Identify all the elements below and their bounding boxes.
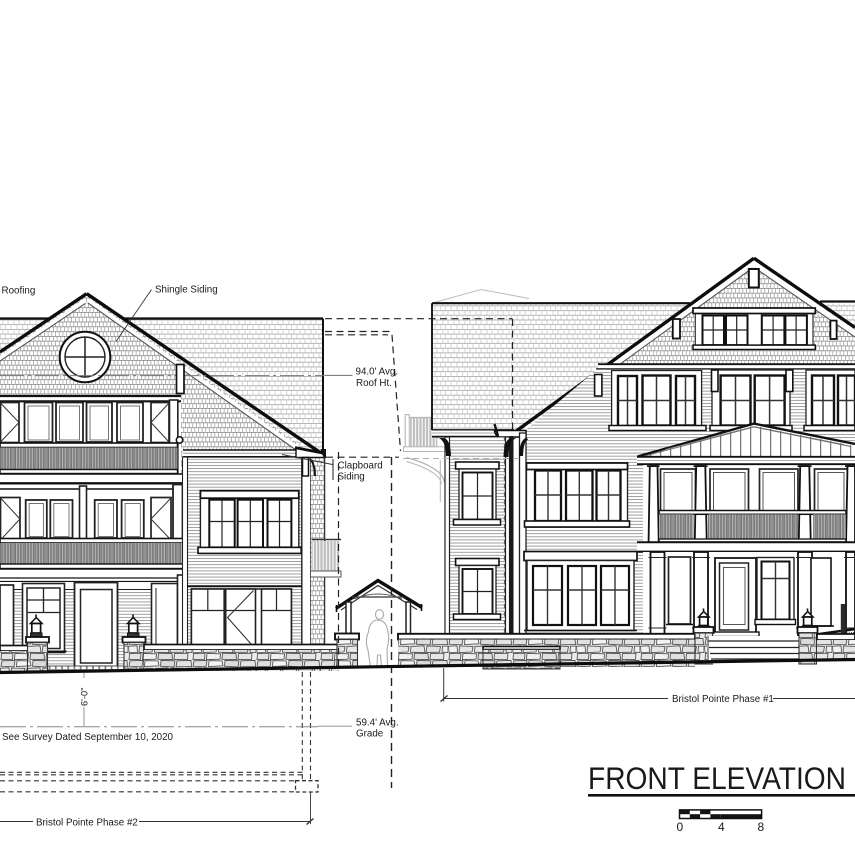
svg-text:Clapboard: Clapboard <box>338 461 383 472</box>
svg-text:59.4' Avg.: 59.4' Avg. <box>356 718 399 729</box>
svg-text:Siding: Siding <box>338 472 365 483</box>
svg-text:Bristol Pointe Phase #1: Bristol Pointe Phase #1 <box>672 694 774 705</box>
svg-text:FRONT ELEVATION: FRONT ELEVATION <box>588 760 846 796</box>
svg-text:See Survey Dated September 10,: See Survey Dated September 10, 2020 <box>2 732 174 743</box>
svg-text:6'-0": 6'-0" <box>80 687 90 706</box>
svg-text:Roof Ht.: Roof Ht. <box>356 378 392 389</box>
svg-text:Roofing: Roofing <box>2 286 36 297</box>
svg-text:Shingle Siding: Shingle Siding <box>155 285 218 296</box>
svg-text:Grade: Grade <box>356 729 384 740</box>
svg-text:0: 0 <box>677 820 684 834</box>
svg-text:94.0' Avg.: 94.0' Avg. <box>356 367 399 378</box>
svg-text:Bristol Pointe Phase #2: Bristol Pointe Phase #2 <box>36 818 138 829</box>
svg-text:4: 4 <box>718 820 725 834</box>
svg-text:8: 8 <box>758 820 765 834</box>
